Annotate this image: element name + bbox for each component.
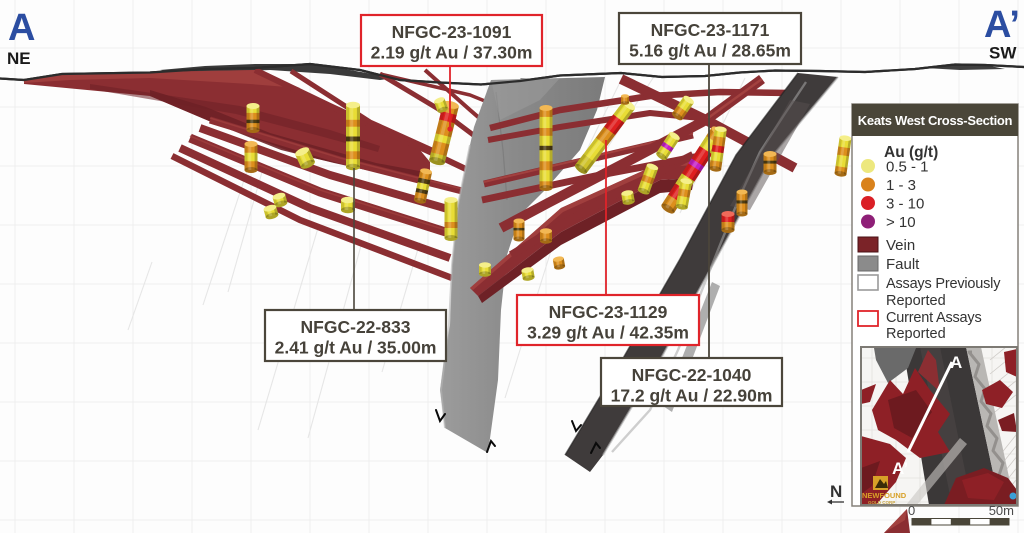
svg-text:0: 0 [908, 503, 915, 518]
svg-text:NE: NE [7, 49, 31, 68]
svg-text:A’: A’ [984, 4, 1020, 46]
svg-text:5.16 g/t Au / 28.65m: 5.16 g/t Au / 28.65m [629, 41, 791, 61]
svg-text:A’: A’ [892, 459, 908, 478]
svg-text:NFGC-22-1040: NFGC-22-1040 [632, 365, 752, 385]
svg-text:2.19 g/t Au / 37.30m: 2.19 g/t Au / 37.30m [371, 43, 533, 63]
svg-text:17.2 g/t Au / 22.90m: 17.2 g/t Au / 22.90m [611, 386, 773, 406]
svg-text:Assays Previously: Assays Previously [886, 276, 1001, 292]
svg-text:NFGC-23-1129: NFGC-23-1129 [549, 302, 668, 322]
svg-text:NFGC-23-1091: NFGC-23-1091 [392, 22, 512, 42]
svg-text:3.29 g/t Au / 42.35m: 3.29 g/t Au / 42.35m [527, 323, 689, 343]
svg-text:Reported: Reported [886, 326, 946, 342]
svg-text:0.5 - 1: 0.5 - 1 [886, 159, 929, 176]
svg-text:NEWFOUND: NEWFOUND [862, 491, 907, 500]
svg-text:A: A [950, 353, 962, 372]
svg-text:A: A [8, 7, 35, 49]
svg-text:N: N [830, 482, 842, 501]
svg-text:Vein: Vein [886, 237, 915, 254]
svg-text:3 - 10: 3 - 10 [886, 196, 924, 213]
svg-text:NFGC-23-1171: NFGC-23-1171 [651, 20, 770, 40]
svg-text:Current Assays: Current Assays [886, 310, 982, 326]
svg-text:Fault: Fault [886, 256, 920, 273]
svg-text:SW: SW [989, 44, 1017, 63]
svg-text:1 - 3: 1 - 3 [886, 177, 916, 194]
svg-text:Reported: Reported [886, 293, 946, 309]
svg-text:> 10: > 10 [886, 214, 916, 231]
svg-text:NFGC-22-833: NFGC-22-833 [301, 317, 411, 337]
svg-text:50m: 50m [989, 503, 1014, 518]
svg-text:Keats West Cross-Section: Keats West Cross-Section [858, 113, 1013, 128]
svg-text:2.41 g/t Au / 35.00m: 2.41 g/t Au / 35.00m [275, 338, 437, 358]
